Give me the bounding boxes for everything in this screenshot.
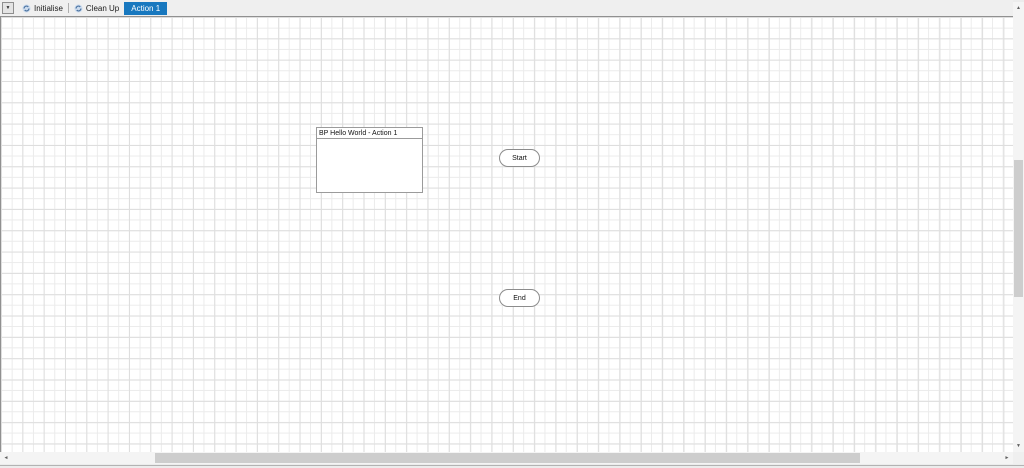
horizontal-scrollbar[interactable]: ◄ ► [0,452,1013,464]
window-bottom-edge [0,465,1024,466]
scroll-right-icon: ► [1005,456,1010,461]
start-stage[interactable]: Start [499,149,540,167]
tab-label: Initialise [34,4,63,13]
tab-action-1[interactable]: Action 1 [124,2,167,15]
end-stage-label: End [513,295,525,302]
note-stage-title: BP Hello World - Action 1 [317,128,422,139]
chevron-down-icon: ▼ [6,6,11,11]
scroll-up-button[interactable]: ▲ [1013,2,1024,14]
scroll-down-icon: ▼ [1016,444,1021,449]
end-stage[interactable]: End [499,289,540,307]
tab-list-dropdown-button[interactable]: ▼ [2,2,14,14]
scroll-up-icon: ▲ [1016,6,1021,11]
tab-clean-up[interactable]: Clean Up [69,0,124,16]
page-icon [22,4,31,13]
start-stage-label: Start [512,155,527,162]
tab-label: Clean Up [86,4,119,13]
vertical-scrollbar-thumb[interactable] [1014,160,1023,297]
scrollbar-corner [1013,452,1024,464]
page-icon [74,4,83,13]
vertical-scrollbar[interactable]: ▲ ▼ [1013,2,1024,452]
scroll-left-icon: ◄ [4,456,9,461]
note-stage[interactable]: BP Hello World - Action 1 [316,127,423,193]
scroll-down-button[interactable]: ▼ [1013,440,1024,452]
scroll-right-button[interactable]: ► [1001,452,1013,464]
page-tab-strip: ▼ Initialise Clean Up Action 1 [0,0,1013,16]
process-diagram-canvas[interactable]: BP Hello World - Action 1 Start End [0,16,1013,452]
horizontal-scrollbar-thumb[interactable] [155,453,860,463]
tab-label: Action 1 [131,4,160,13]
tab-initialise[interactable]: Initialise [17,0,68,16]
scroll-left-button[interactable]: ◄ [0,452,12,464]
